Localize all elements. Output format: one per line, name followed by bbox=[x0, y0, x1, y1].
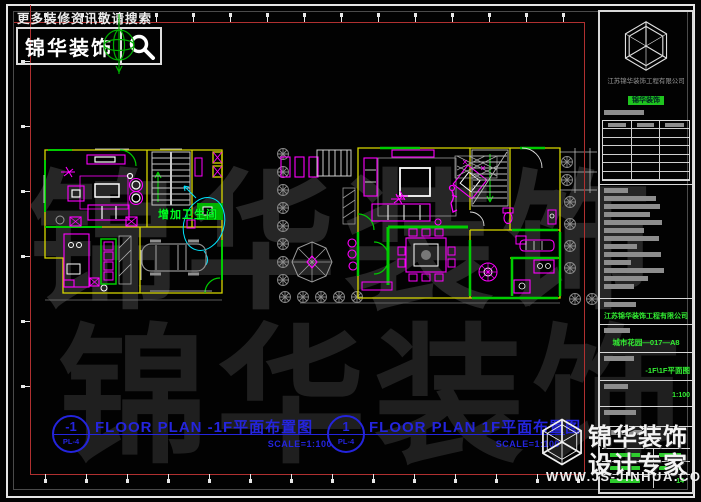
entry-stairs bbox=[317, 150, 351, 176]
car-icon bbox=[142, 241, 206, 274]
label-title: FLOOR PLAN -1F平面布置图 bbox=[95, 416, 313, 437]
field-label bbox=[604, 384, 628, 389]
label-number: -1 bbox=[52, 419, 90, 434]
green-globe-icon bbox=[96, 14, 142, 79]
label-number: 1 bbox=[327, 419, 365, 434]
hatched-door bbox=[119, 236, 131, 284]
brand-badge: 锦华装饰 bbox=[628, 96, 664, 105]
field-label bbox=[604, 356, 634, 361]
drawing-scale: 1:100 bbox=[602, 392, 690, 399]
revision-table bbox=[602, 120, 690, 181]
living-room-furniture bbox=[364, 150, 487, 225]
field-label bbox=[604, 328, 630, 333]
label-scale: SCALE=1:100 bbox=[232, 439, 332, 449]
watermark-cube-logo-icon bbox=[536, 414, 588, 475]
project-code: 城市花园—017—A8 bbox=[602, 337, 690, 348]
kitchen-fixtures bbox=[479, 258, 558, 296]
drawing-name: -1F\1F平面图 bbox=[602, 365, 690, 376]
revision-ellipse bbox=[177, 186, 232, 265]
kitchen-furniture bbox=[64, 234, 99, 287]
large-tree-icon bbox=[292, 242, 332, 282]
field-label bbox=[604, 302, 636, 307]
company-name: 江苏锦华装饰工程有限公司 bbox=[604, 76, 689, 85]
label-sheet-ref: PL-4 bbox=[52, 437, 90, 446]
watermark-website-url: WWW.JS-JINHUA.COM bbox=[546, 469, 701, 484]
field-label bbox=[604, 410, 636, 415]
plant-icon bbox=[56, 216, 64, 224]
label-sheet-ref: PL-4 bbox=[327, 437, 365, 446]
green-cabinet bbox=[101, 239, 116, 284]
company-cube-logo-icon bbox=[618, 17, 674, 80]
green-wall-accents bbox=[358, 148, 560, 298]
notes-section bbox=[604, 188, 688, 292]
border-ticks-left bbox=[21, 60, 30, 450]
add-bathroom-annotation: 增加卫生间 bbox=[158, 206, 218, 222]
dining-room-furniture bbox=[362, 229, 455, 290]
hatched-column bbox=[343, 188, 355, 224]
design-company: 江苏锦华装饰工程有限公司 bbox=[602, 311, 690, 321]
border-ticks-bottom bbox=[44, 474, 584, 483]
revision-table-label bbox=[604, 110, 644, 115]
lattice-panel bbox=[455, 156, 497, 178]
column-x-marks bbox=[213, 152, 222, 177]
planters bbox=[281, 157, 357, 270]
cad-drawing-sheet: 锦华装饰 锦华装饰 更多装修资讯敬请搜索 锦华装饰 bbox=[0, 0, 701, 502]
